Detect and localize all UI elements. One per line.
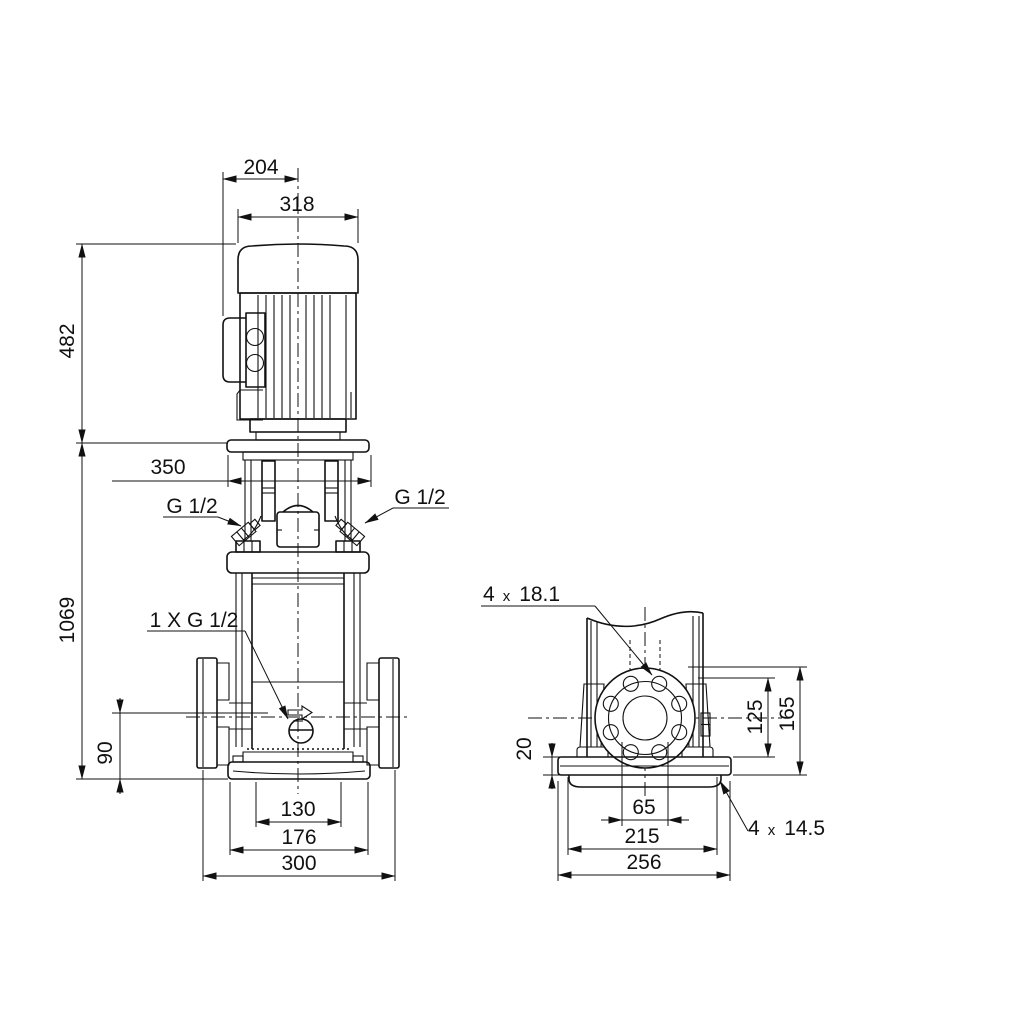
dim-215: 215 xyxy=(568,825,717,849)
dim-204: 204 xyxy=(223,156,298,179)
callout-base-holes: 4x14.5 xyxy=(720,781,825,840)
dim-130: 130 xyxy=(256,798,341,822)
dim-20: 20 xyxy=(513,737,552,789)
dim-90: 90 xyxy=(94,698,120,794)
dim-165: 165 xyxy=(776,667,800,775)
dim-300: 300 xyxy=(203,852,395,876)
dim-90-label: 90 xyxy=(94,741,117,764)
dim-256: 256 xyxy=(558,851,730,875)
dim-176: 176 xyxy=(230,826,368,850)
motor-fins xyxy=(258,295,351,418)
dim-176-label: 176 xyxy=(281,826,316,849)
dim-300-label: 300 xyxy=(281,852,316,875)
staybolt-nut-left xyxy=(236,541,260,552)
callouts: G 1/2 G 1/2 1 X G 1/2 4x18.1 4x14.5 xyxy=(147,486,825,840)
motor xyxy=(223,244,358,440)
front-base xyxy=(228,752,370,779)
dim-65: 65 xyxy=(601,796,689,820)
dim-125: 125 xyxy=(744,678,768,757)
g12-right-label: G 1/2 xyxy=(394,486,445,509)
dim-215-label: 215 xyxy=(624,825,659,848)
callout-flange-holes: 4x18.1 xyxy=(481,583,652,675)
pump-dimensional-drawing: 204 318 482 1069 350 90 130 xyxy=(0,0,1024,1024)
staybolt-nut-right xyxy=(336,541,360,552)
dim-130-label: 130 xyxy=(280,798,315,821)
base-holes-label: 4x14.5 xyxy=(748,817,825,840)
dim-165-label: 165 xyxy=(776,696,799,731)
side-port-flange xyxy=(595,668,695,768)
dim-1069-label: 1069 xyxy=(56,597,79,644)
cable-entry-hole xyxy=(247,355,264,372)
technical-drawing-canvas: 204 318 482 1069 350 90 130 xyxy=(0,0,1024,1024)
cable-entry-hole xyxy=(247,329,264,346)
g12-left-label: G 1/2 xyxy=(166,495,217,518)
dim-482: 482 xyxy=(56,244,82,443)
dim-318: 318 xyxy=(238,193,358,217)
dim-204-label: 204 xyxy=(243,156,278,179)
dim-318-label: 318 xyxy=(279,193,314,216)
callout-g12-right: G 1/2 xyxy=(365,486,449,523)
dim-1069: 1069 xyxy=(56,443,82,779)
terminal-box xyxy=(223,313,265,420)
drain-plug xyxy=(288,706,313,743)
drain-label: 1 X G 1/2 xyxy=(150,609,239,632)
dim-20-label: 20 xyxy=(513,737,536,760)
flange-holes-label: 4x18.1 xyxy=(483,583,560,606)
callout-g12-left: G 1/2 xyxy=(163,495,241,526)
dim-350-label: 350 xyxy=(150,456,185,479)
dim-482-label: 482 xyxy=(56,323,79,358)
dim-65-label: 65 xyxy=(632,796,655,819)
dim-256-label: 256 xyxy=(626,851,661,874)
dim-125-label: 125 xyxy=(744,699,767,734)
